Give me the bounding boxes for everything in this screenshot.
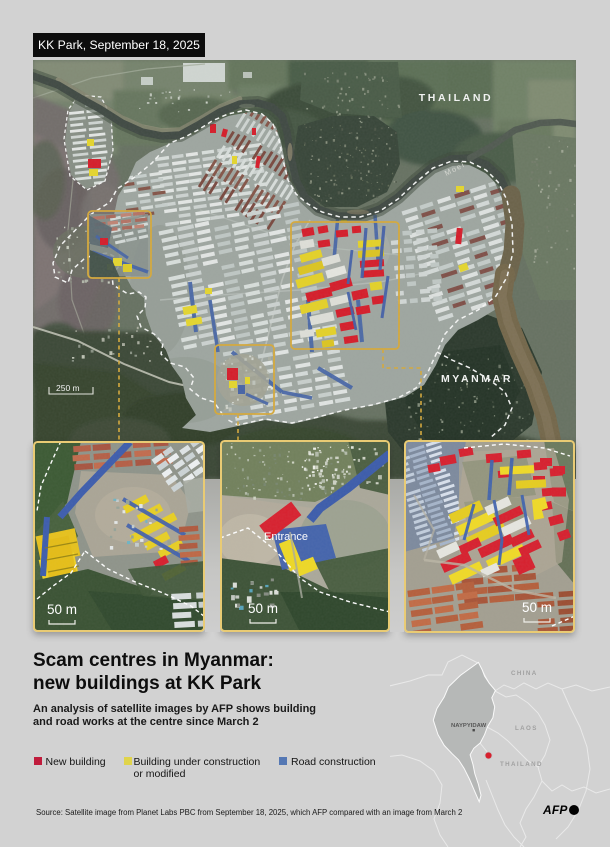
svg-text:50 m: 50 m [47,602,77,617]
svg-text:NAYPYIDAW: NAYPYIDAW [451,723,487,729]
svg-text:CHINA: CHINA [511,670,538,677]
svg-text:THAILAND: THAILAND [500,761,543,768]
svg-text:50 m: 50 m [522,600,552,615]
svg-text:LAOS: LAOS [515,725,538,732]
svg-text:50 m: 50 m [248,601,278,616]
